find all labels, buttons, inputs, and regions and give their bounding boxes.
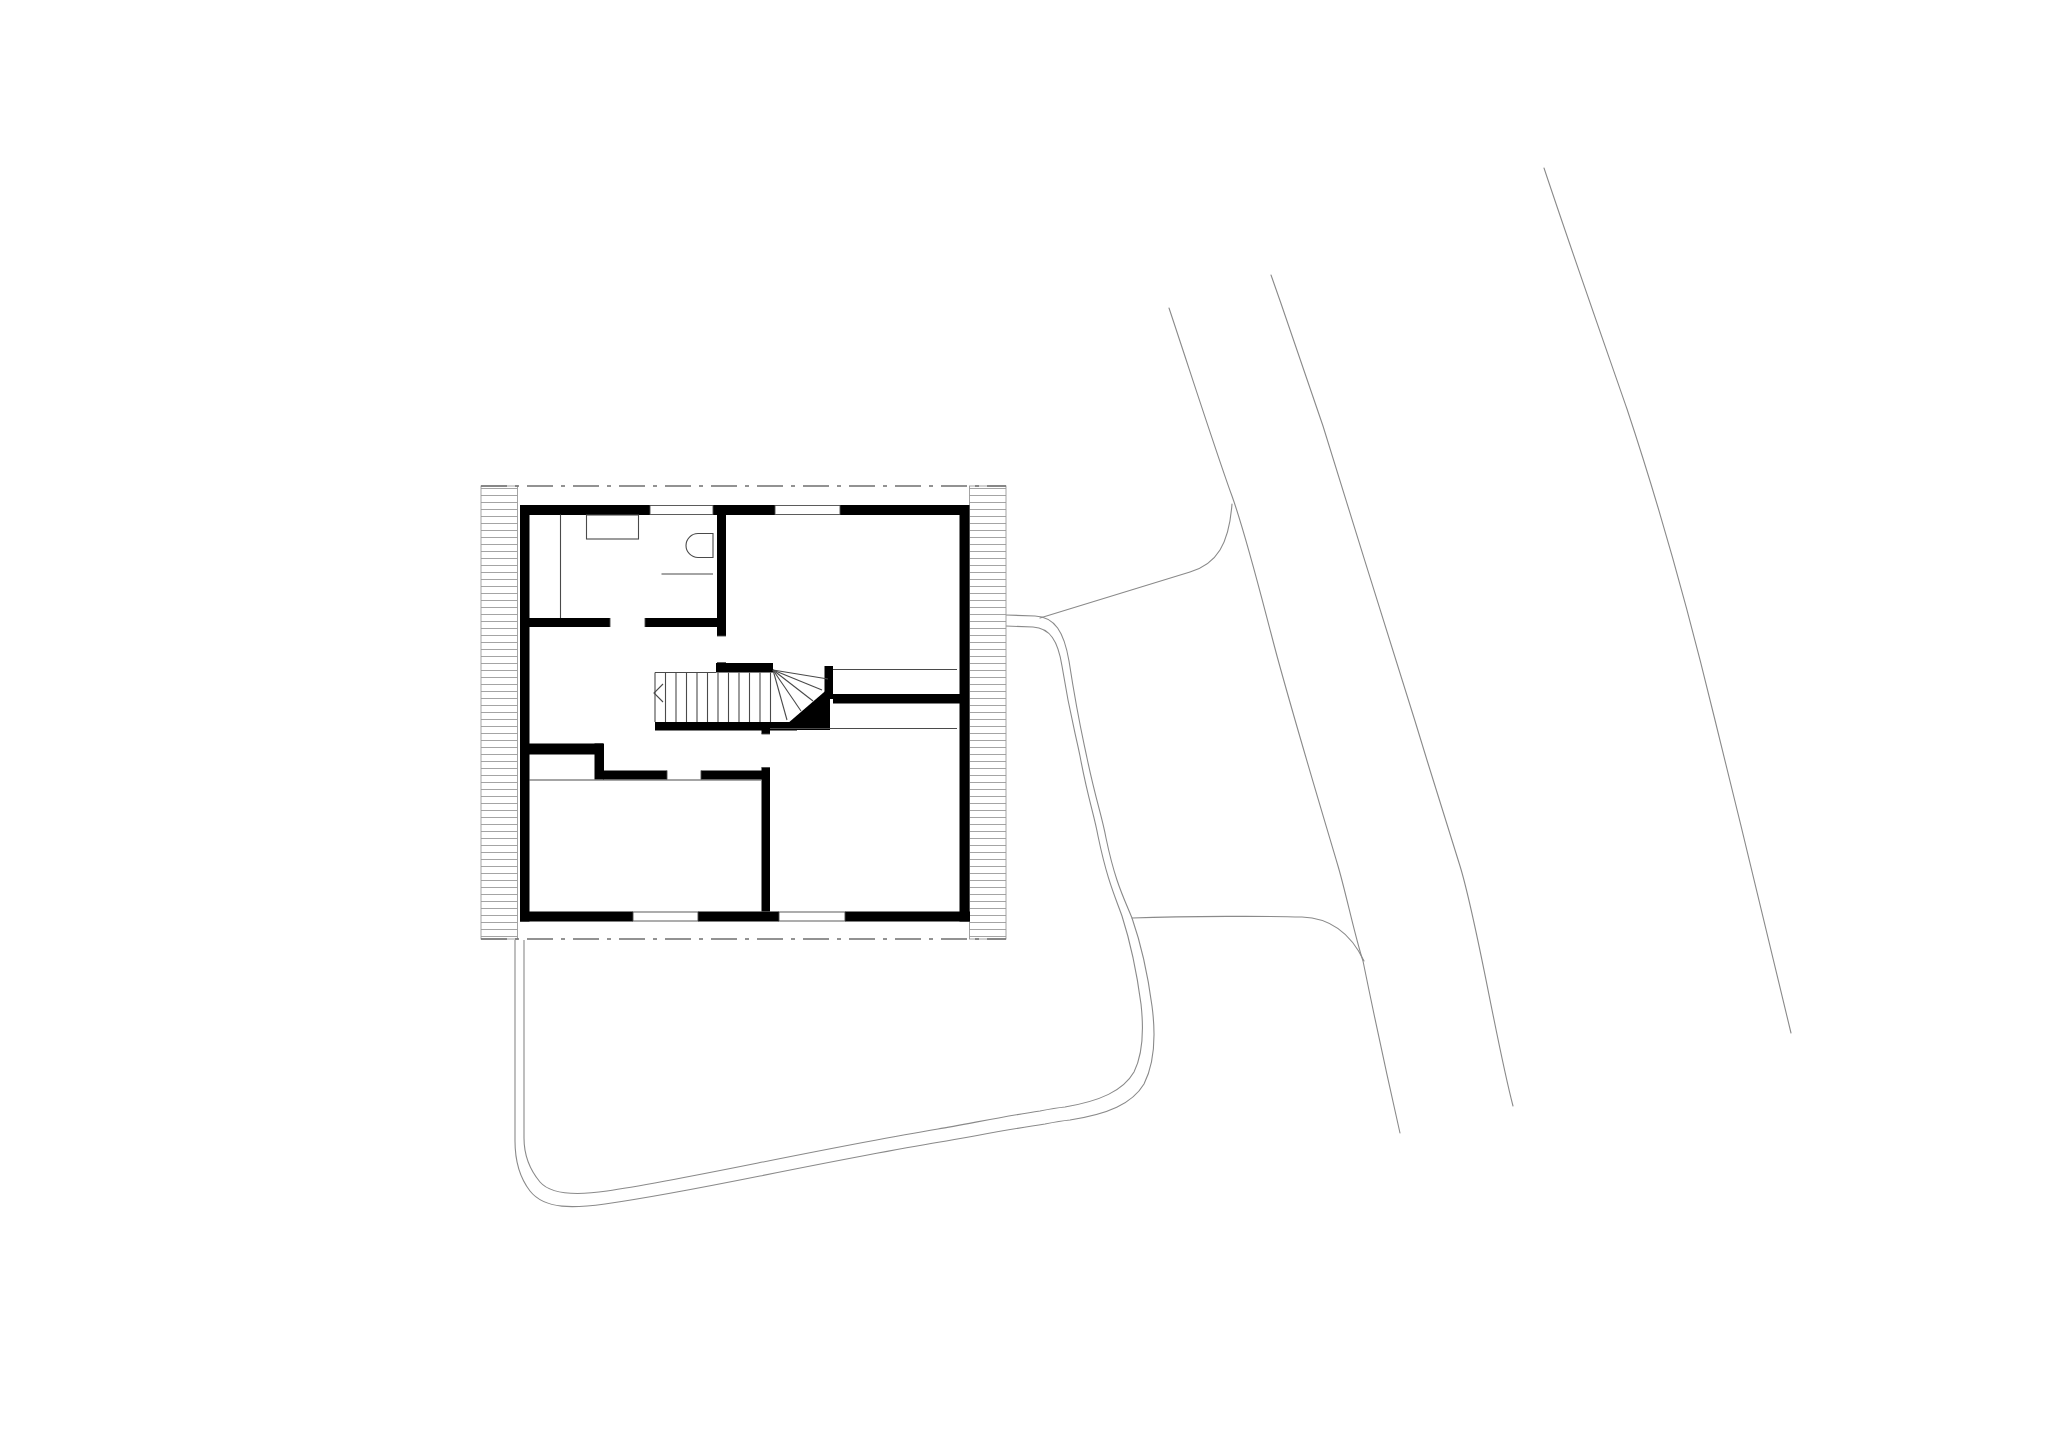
- plot-boundary-line: [1544, 168, 1791, 1033]
- door-jambs-group: [610, 618, 770, 780]
- bathroom-fixtures-group: [587, 515, 714, 558]
- window-opening: [650, 506, 713, 515]
- eave-band-left: [481, 486, 518, 939]
- driveway-road-branch-lower-line: [1132, 916, 1364, 961]
- wall-segment: [595, 744, 605, 780]
- site-lines-group: [1040, 168, 1791, 1133]
- wall-segment: [603, 771, 667, 780]
- wall-segment: [833, 694, 960, 704]
- washbasin-counter: [587, 515, 639, 539]
- window-opening: [779, 912, 845, 921]
- wall-segment: [840, 505, 960, 515]
- wall-segment: [529, 618, 610, 627]
- wall-segment: [698, 912, 779, 922]
- stair-winder-line: [773, 670, 828, 679]
- driveway-road-branch-upper-line: [1040, 504, 1232, 618]
- window-opening: [633, 912, 698, 921]
- wall-segment: [655, 722, 797, 731]
- wall-segment: [845, 912, 970, 922]
- walls-group: [520, 505, 970, 922]
- wall-segment: [520, 505, 650, 515]
- road-edge-right-line: [1271, 275, 1513, 1106]
- wall-segment: [716, 663, 773, 673]
- wc-fixture: [686, 534, 713, 558]
- road-edge-left-line: [1169, 308, 1400, 1133]
- driveway-outer-edge: [515, 615, 1154, 1207]
- wall-segment: [701, 771, 770, 780]
- eave-band-right: [970, 486, 1007, 939]
- floor-plan-sheet: [40, 16, 2048, 1448]
- stair-winder-line: [773, 670, 787, 720]
- wall-segment: [520, 505, 530, 922]
- roof-dash-outline-group: [481, 486, 1006, 939]
- wall-segment: [717, 514, 726, 636]
- stair-winder-line: [773, 670, 813, 701]
- driveway-inner-edge: [524, 626, 1142, 1194]
- wall-segment: [762, 768, 771, 912]
- eave-hatch-band-left-right-group: [481, 486, 1006, 939]
- wall-segment: [960, 505, 970, 922]
- wall-segment: [520, 912, 633, 922]
- wall-segment: [645, 618, 718, 627]
- knee-and-detail-lines-group: [529, 515, 957, 781]
- wall-segment: [762, 723, 771, 735]
- driveway-group: [515, 615, 1154, 1207]
- wall-segment: [713, 505, 775, 515]
- plan-svg: [40, 16, 2048, 1448]
- window-opening: [775, 506, 840, 515]
- wall-segment: [527, 744, 603, 755]
